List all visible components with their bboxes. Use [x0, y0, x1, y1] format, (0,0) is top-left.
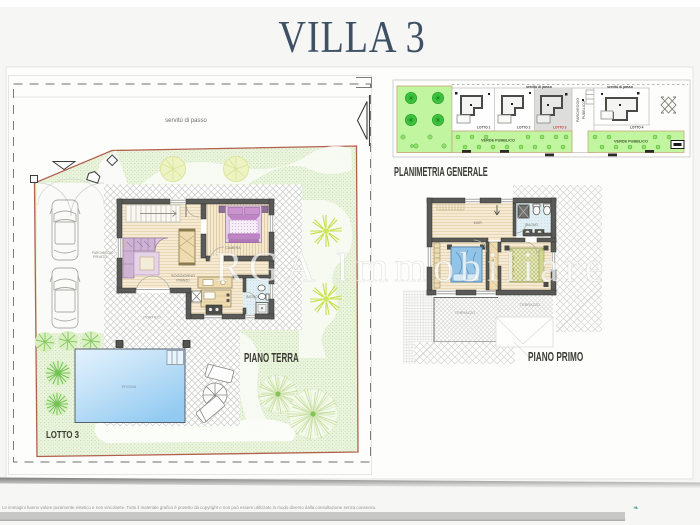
- svg-text:LOTTO 4: LOTTO 4: [630, 126, 644, 130]
- svg-text:LOTTO 3: LOTTO 3: [46, 429, 79, 440]
- svg-text:Le immagini hanno valore puram: Le immagini hanno valore puramente estet…: [2, 505, 376, 510]
- svg-text:servitù di passo: servitù di passo: [165, 118, 207, 124]
- svg-text:PIANO TERRA: PIANO TERRA: [244, 352, 299, 365]
- svg-text:PLANIMETRIA GENERALE: PLANIMETRIA GENERALE: [394, 166, 488, 179]
- svg-text:PARCHEGGIO: PARCHEGGIO: [576, 98, 580, 122]
- svg-text:BAGNO: BAGNO: [526, 223, 539, 227]
- svg-text:LOTTO 2: LOTTO 2: [517, 126, 531, 130]
- svg-text:LOTTO 1: LOTTO 1: [477, 126, 491, 130]
- svg-text:PISCINA: PISCINA: [122, 385, 137, 389]
- svg-text:servitù di passo: servitù di passo: [607, 85, 633, 89]
- svg-text:RGA Immobiliare: RGA Immobiliare: [215, 245, 609, 291]
- svg-text:SOGGIORNO: SOGGIORNO: [171, 274, 195, 278]
- svg-text:BAGNO: BAGNO: [246, 295, 258, 299]
- svg-text:❧: ❧: [633, 505, 639, 512]
- svg-text:INGR.: INGR.: [474, 221, 483, 225]
- svg-text:servitù di passo: servitù di passo: [526, 85, 552, 89]
- svg-text:PUBBLICO: PUBBLICO: [582, 101, 586, 119]
- svg-text:LOTTO 3: LOTTO 3: [553, 126, 567, 130]
- svg-text:TERRAZZO: TERRAZZO: [455, 311, 476, 315]
- svg-text:PRIVATO: PRIVATO: [93, 255, 107, 259]
- svg-text:PORTICO: PORTICO: [143, 316, 160, 320]
- svg-text:VERDE PUBBLICO: VERDE PUBBLICO: [481, 139, 515, 143]
- svg-text:VERDE PUBBLICO: VERDE PUBBLICO: [614, 140, 648, 144]
- svg-text:PRANZO: PRANZO: [176, 279, 190, 283]
- svg-text:TERRAZZO: TERRAZZO: [520, 303, 541, 307]
- svg-text:PIANO PRIMO: PIANO PRIMO: [528, 350, 583, 364]
- svg-text:VILLA 3: VILLA 3: [278, 13, 425, 63]
